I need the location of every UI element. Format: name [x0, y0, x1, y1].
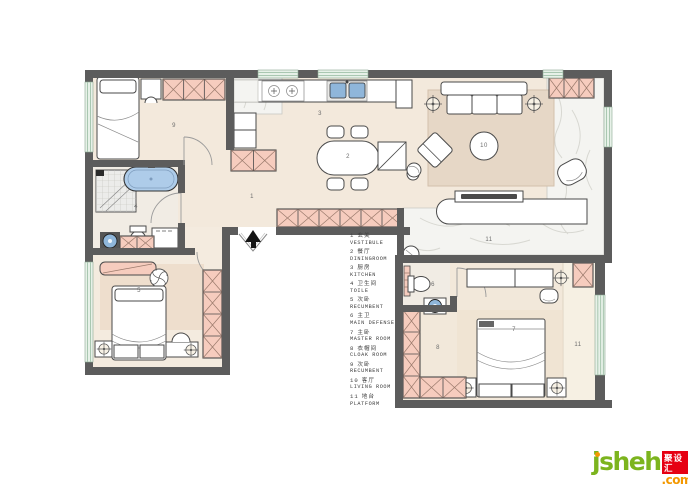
hallway-storage [277, 209, 403, 227]
legend-item: 6主卫 MAIN DEFENSE [350, 313, 410, 326]
living-room [407, 82, 554, 186]
legend-item: 3厨房 KITCHEN [350, 265, 410, 278]
logo-wordmark: jsheh [592, 447, 661, 477]
sofa-back [441, 82, 527, 95]
room-label-platform-b: 11 [574, 342, 581, 348]
entry-door [239, 230, 267, 251]
logo-badge: 聚设汇 [662, 451, 688, 474]
room-label-bedroom5: 5 [137, 288, 141, 294]
cloak-wardrobe-row [420, 377, 466, 398]
legend-item: 2餐厅 DININGROOM [350, 249, 410, 262]
shoe-cabinet [231, 150, 276, 171]
logo-j-dot [595, 452, 600, 457]
cabinet-living-tr [549, 78, 594, 98]
jsheh-logo: jsheh 聚设汇 .com [592, 447, 688, 486]
tv-console [436, 199, 587, 224]
wardrobe-bedroom9 [163, 79, 225, 100]
room-label-kitchen: 3 [318, 111, 322, 117]
legend-item: 5次卧 RECUMBENT [350, 297, 410, 310]
dresser [515, 269, 553, 287]
legend-item: 11地台 PLATFORM [350, 394, 410, 407]
legend-item: 10客厅 LIVING ROOM [350, 378, 410, 391]
room-label-platform-a: 11 [485, 237, 492, 243]
nightstand [141, 79, 161, 99]
room-label-living: 10 [480, 143, 488, 149]
wardrobe-bedroom5 [203, 270, 222, 358]
room-label-masterbath: 6 [431, 282, 435, 288]
room-label-cloakroom: 8 [436, 345, 440, 351]
bath-vanity [120, 236, 154, 250]
room-label-bathroom: 4 [134, 204, 138, 210]
north-arrow-icon [245, 230, 261, 248]
tv [461, 194, 517, 199]
kitchen-end-cabinet [396, 80, 412, 108]
floor-plan-drawing [0, 0, 688, 486]
floor-plan-page: 1 2 3 4 5 6 7 8 9 10 11 11 1玄关 VESTIBULE… [0, 0, 688, 486]
room-label-dining: 2 [346, 154, 350, 160]
legend-item: 4卫生间 TOILE [350, 281, 410, 294]
small-chair [540, 289, 558, 303]
legend-item: 8衣帽间 CLOAK ROOM [350, 346, 410, 359]
room-label-vestibule: 1 [250, 194, 254, 200]
legend: 1玄关 VESTIBULE 2餐厅 DININGROOM 3厨房 KITCHEN… [350, 233, 410, 410]
cabinet-master-tr [573, 263, 593, 287]
legend-item: 7主卧 MASTER ROOM [350, 330, 410, 343]
logo-com-suffix: .com [662, 474, 688, 486]
room-label-bedroom9: 9 [172, 123, 176, 129]
toilet [412, 277, 430, 292]
legend-item: 9次卧 RECUMBENT [350, 362, 410, 375]
dresser [467, 269, 515, 287]
legend-item: 1玄关 VESTIBULE [350, 233, 410, 246]
room-label-masterroom: 7 [512, 327, 516, 333]
